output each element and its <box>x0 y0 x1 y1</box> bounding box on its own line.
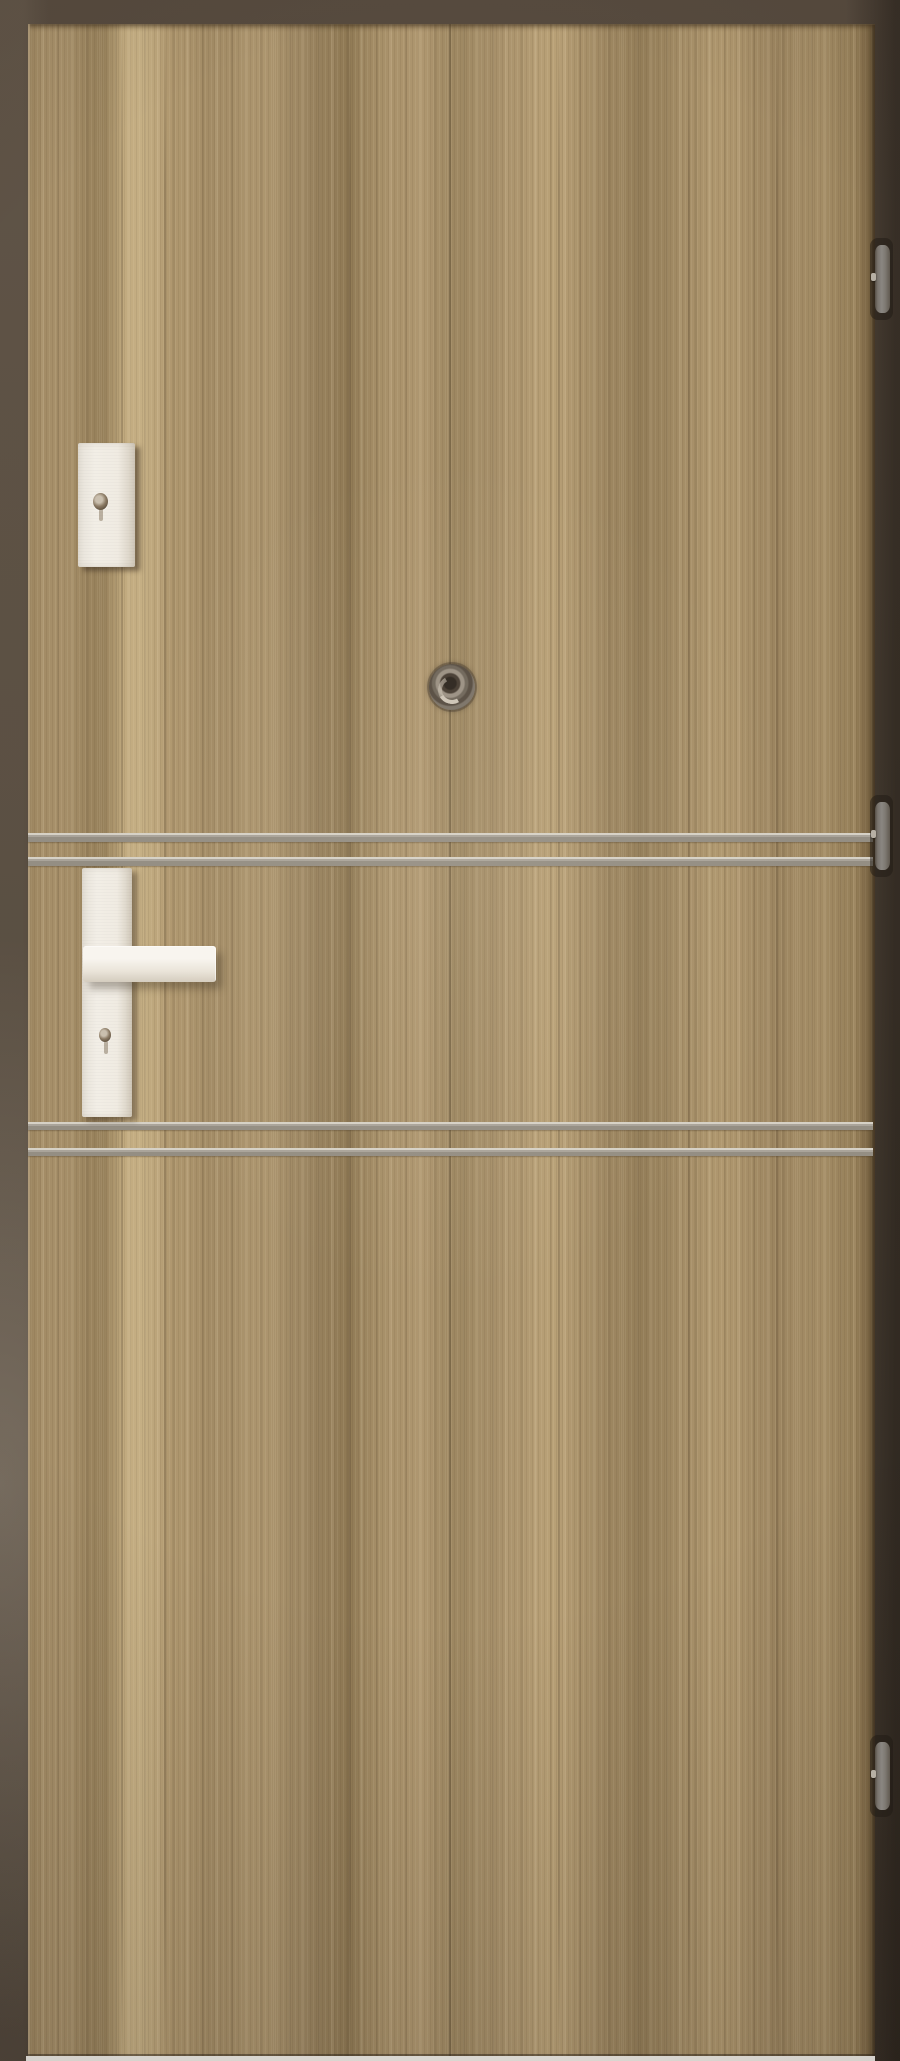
inlay-strip-3 <box>28 1122 873 1130</box>
hinge-bottom <box>875 1742 890 1810</box>
wood-seam <box>688 24 690 2061</box>
lock-escutcheon <box>78 443 135 567</box>
inlay-strip-4 <box>28 1148 873 1156</box>
inlay-strip-1 <box>28 833 873 842</box>
escutcheon-keyhole-icon <box>93 493 108 510</box>
wood-seam <box>558 24 560 2061</box>
wood-seam-center <box>449 24 451 2061</box>
hinge-middle <box>875 802 890 870</box>
floor-strip <box>26 2056 875 2061</box>
door-leaf <box>28 24 875 2061</box>
wood-seam <box>776 24 778 2061</box>
lighting-overlay <box>28 24 875 2061</box>
photo-stage <box>0 0 900 2061</box>
handle-keyhole-icon <box>99 1028 111 1042</box>
handle-backplate <box>82 868 132 1117</box>
hinge-top <box>875 245 890 313</box>
peephole <box>429 664 475 710</box>
inlay-strip-2 <box>28 857 873 866</box>
door-handle-lever <box>83 946 216 982</box>
wood-seam <box>164 24 166 2061</box>
wood-seam <box>349 24 351 2061</box>
